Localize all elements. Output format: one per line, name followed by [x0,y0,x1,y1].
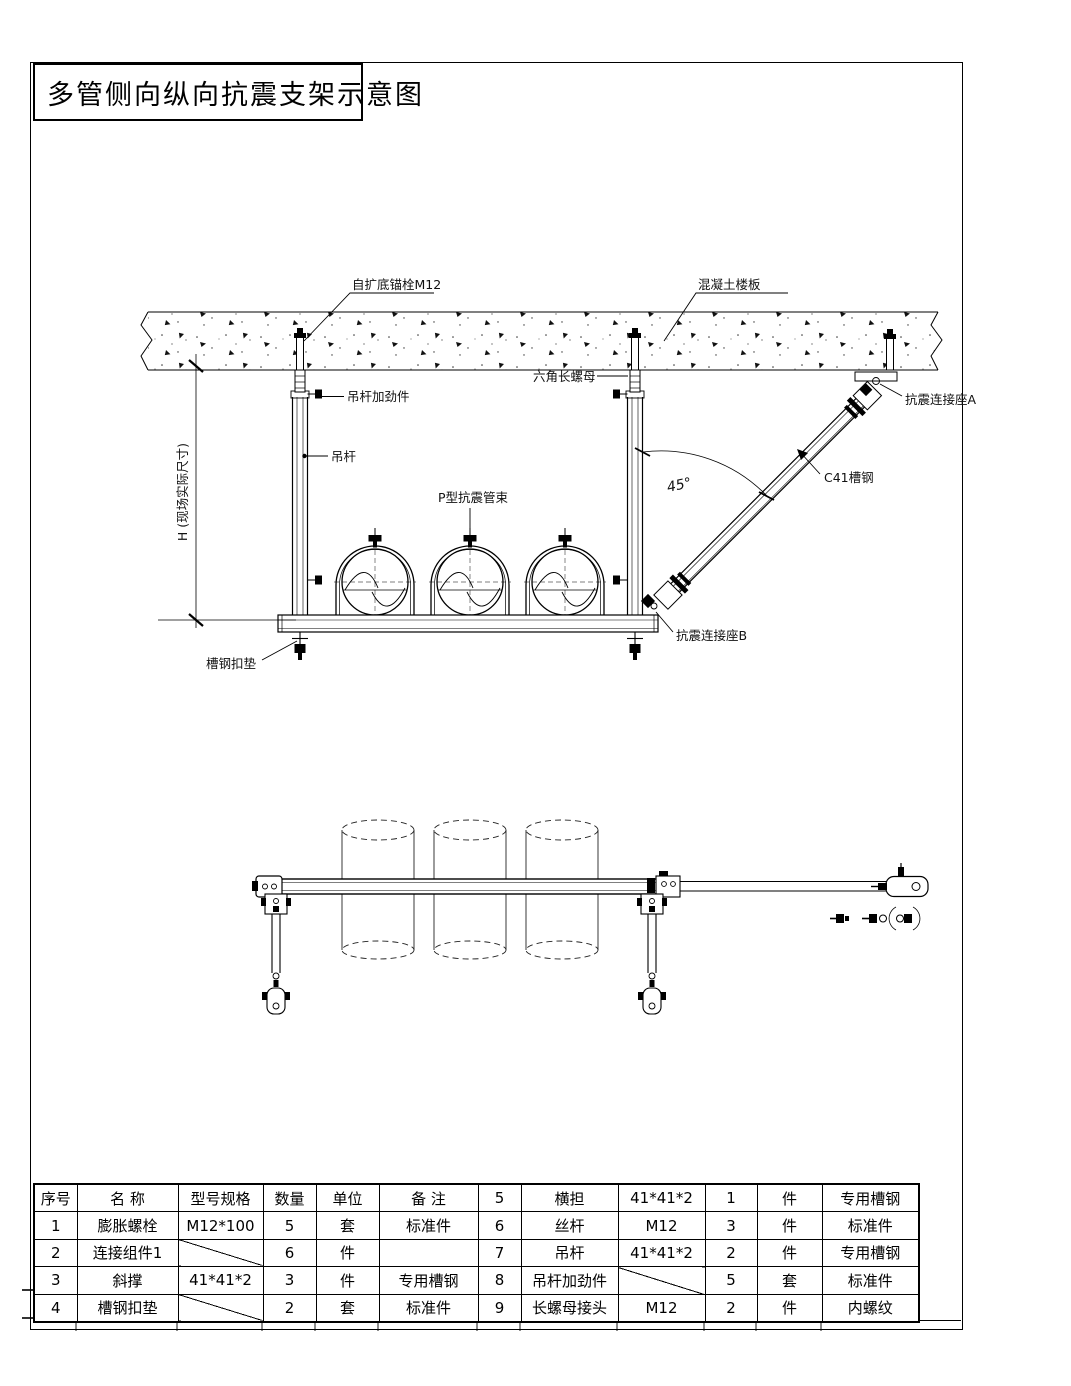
table-cell: 41*41*2 [178,1267,263,1294]
plan-channel-bar [252,863,928,897]
cross-channel [278,615,658,660]
table-cell: 槽钢扣垫 [77,1294,178,1322]
table-cell: 件 [316,1267,379,1294]
table-cell: 专用槽钢 [379,1267,478,1294]
label-seat-b: 抗震连接座B [676,628,747,643]
height-dimension: H (现场实际尺寸) [158,354,296,628]
table-row: 4 槽钢扣垫 2 套 标准件 9 长螺母接头 M12 2 件 内螺纹 [34,1294,919,1322]
leader-channel-pad: 槽钢扣垫 [206,641,297,671]
table-cell: 内螺纹 [822,1294,919,1322]
elevation-view: 45° H (现场实际尺寸) 自扩底锚栓M12 混凝土楼板 [141,277,977,671]
table-cell: 2 [263,1294,316,1322]
table-cell: 5 [263,1212,316,1239]
plan-brace-right [637,894,667,1014]
label-height-dim: H (现场实际尺寸) [175,443,190,541]
title-box: 多管侧向纵向抗震支架示意图 [33,63,363,121]
leader-hanger-rod: 吊杆 [302,449,356,464]
table-cell [618,1267,705,1294]
table-cell: 丝杆 [521,1212,618,1239]
table-cell: 横担 [521,1184,618,1212]
leader-stiffener: 吊杆加劲件 [321,389,410,404]
label-c41: C41槽钢 [824,470,874,485]
table-cell: M12 [618,1294,705,1322]
table-cell: M12*100 [178,1212,263,1239]
table-cell: 斜撑 [77,1267,178,1294]
plan-view [252,820,928,1014]
bolt-washer-icon [862,914,887,923]
drawing-title: 多管侧向纵向抗震支架示意图 [47,73,424,112]
table-row: 3 斜撑 41*41*2 3 件 专用槽钢 8 吊杆加劲件 5 套 标准件 [34,1267,919,1294]
table-cell: 件 [757,1294,822,1322]
table-cell: 4 [34,1294,77,1322]
table-cell: 吊杆 [521,1239,618,1266]
leader-seat-a: 抗震连接座A [880,384,977,407]
table-cell: 6 [478,1212,521,1239]
table-cell: 长螺母接头 [521,1294,618,1322]
table-header-cell: 型号规格 [178,1184,263,1212]
table-cell: 41*41*2 [618,1184,705,1212]
table-header-cell: 数量 [263,1184,316,1212]
table-cell: 5 [705,1267,757,1294]
table-cell: 8 [478,1267,521,1294]
table-header-cell: 备 注 [379,1184,478,1212]
table-row: 2 连接组件1 6 件 7 吊杆 41*41*2 2 件 专用槽钢 [34,1239,919,1266]
table-cell [178,1294,263,1322]
leader-seat-b: 抗震连接座B [656,612,747,643]
table-cell: 2 [705,1294,757,1322]
table-cell: 2 [34,1239,77,1266]
table-cell: 标准件 [822,1267,919,1294]
table-cell: 1 [34,1212,77,1239]
plan-brace-left [261,894,291,1014]
label-channel-pad: 槽钢扣垫 [206,656,257,671]
table-cell: 3 [263,1267,316,1294]
label-seat-a: 抗震连接座A [905,392,977,407]
table-cell: 6 [263,1239,316,1266]
table-cell: 件 [757,1184,822,1212]
table-cell: 件 [316,1239,379,1266]
table-cell: 1 [705,1184,757,1212]
table-cell: 标准件 [379,1212,478,1239]
pipe-with-clamp [334,528,606,626]
angle-annotation: 45° [635,448,774,500]
hardware-icons [830,907,920,930]
table-header-cell: 序号 [34,1184,77,1212]
table-cell: 专用槽钢 [822,1184,919,1212]
drawing-sheet: 45° H (现场实际尺寸) 自扩底锚栓M12 混凝土楼板 [0,0,1071,1386]
leader-hex-nut: 六角长螺母 [533,369,628,384]
table-cell: M12 [618,1212,705,1239]
table-row: 1 膨胀螺栓 M12*100 5 套 标准件 6 丝杆 M12 3 件 标准件 [34,1212,919,1239]
bolt-icon [830,914,849,923]
leader-p-clamp: P型抗震管束 [438,490,509,534]
table-cell: 2 [705,1239,757,1266]
hanger-rod-left [291,328,322,615]
table-cell: 件 [757,1212,822,1239]
table-cell: 标准件 [822,1212,919,1239]
table-header-cell: 单位 [316,1184,379,1212]
label-hanger-rod: 吊杆 [331,449,357,464]
hanger-rod-right [613,328,644,615]
concrete-slab [141,312,942,370]
table-cell: 5 [478,1184,521,1212]
table-cell: 套 [316,1212,379,1239]
table-cell: 套 [757,1267,822,1294]
label-p-clamp: P型抗震管束 [438,490,509,505]
parts-table: 序号 名 称 型号规格 数量 单位 备 注 5 横担 41*41*2 1 件 专… [33,1183,920,1323]
table-cell: 连接组件1 [77,1239,178,1266]
table-cell: 41*41*2 [618,1239,705,1266]
table-cell: 吊杆加劲件 [521,1267,618,1294]
table-row: 序号 名 称 型号规格 数量 单位 备 注 5 横担 41*41*2 1 件 专… [34,1184,919,1212]
table-cell: 标准件 [379,1294,478,1322]
label-concrete-slab: 混凝土楼板 [698,277,761,292]
label-hex-nut: 六角长螺母 [533,369,596,384]
table-cell [379,1239,478,1266]
table-cell: 套 [316,1294,379,1322]
table-cell: 件 [757,1239,822,1266]
table-cell: 9 [478,1294,521,1322]
label-stiffener: 吊杆加劲件 [347,389,410,404]
table-header-cell: 名 称 [77,1184,178,1212]
cad-drawing: 45° H (现场实际尺寸) 自扩底锚栓M12 混凝土楼板 [0,0,1071,1386]
table-cell: 专用槽钢 [822,1239,919,1266]
table-cell: 3 [705,1212,757,1239]
nut-icon [889,907,920,930]
table-cell: 7 [478,1239,521,1266]
table-cell: 3 [34,1267,77,1294]
table-cell [178,1239,263,1266]
label-anchor-bolt: 自扩底锚栓M12 [352,277,441,292]
label-angle: 45° [666,475,694,496]
table-cell: 膨胀螺栓 [77,1212,178,1239]
